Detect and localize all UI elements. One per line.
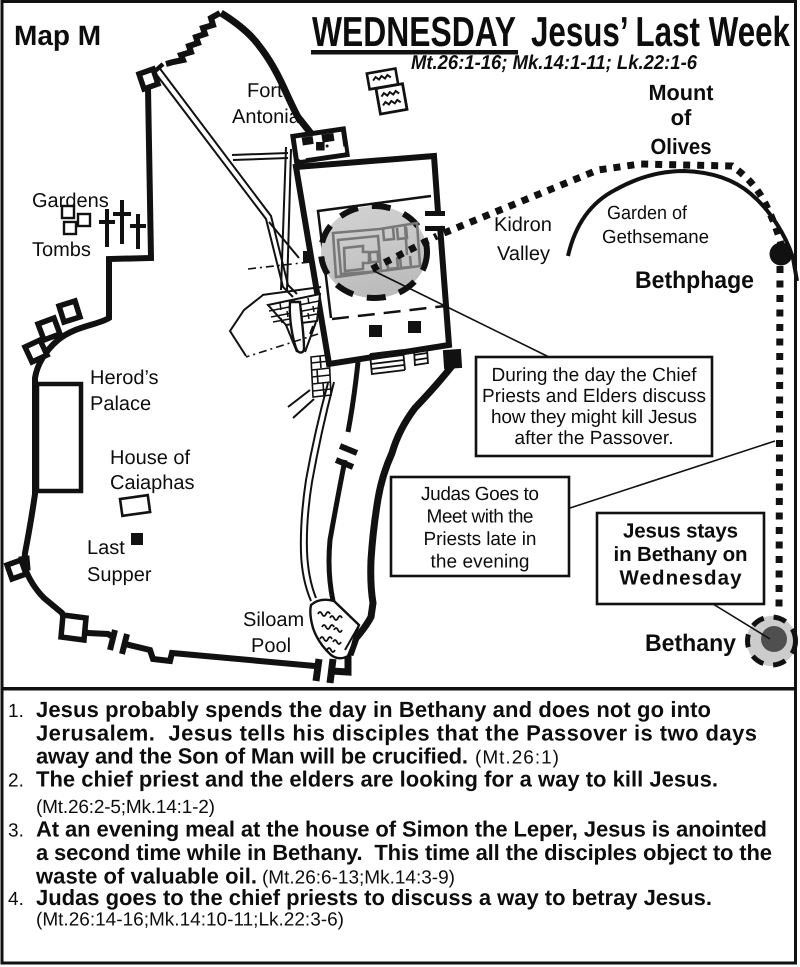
svg-text:Siloam: Siloam [243, 609, 304, 631]
svg-text:Mt.26:1-16; Mk.14:1-11; Lk.22:: Mt.26:1-16; Mk.14:1-11; Lk.22:1-6 [411, 52, 698, 74]
svg-text:Bethphage: Bethphage [635, 267, 754, 294]
svg-text:1.: 1. [8, 701, 24, 722]
svg-text:Valley: Valley [497, 243, 550, 265]
svg-text:Bethany: Bethany [645, 630, 737, 657]
svg-text:Antonia: Antonia [232, 106, 301, 128]
svg-text:WEDNESDAY: WEDNESDAY [312, 8, 516, 55]
svg-text:Map M: Map M [14, 20, 101, 51]
svg-text:Tombs: Tombs [32, 239, 91, 261]
svg-text:Last: Last [87, 537, 125, 559]
svg-text:4.: 4. [8, 889, 24, 910]
svg-text:House of: House of [110, 447, 190, 469]
svg-text:Wednesday: Wednesday [620, 567, 743, 590]
svg-text:(Mt.26:14-16;Mk.14:10-11;Lk.22: (Mt.26:14-16;Mk.14:10-11;Lk.22:3-6) [36, 910, 344, 931]
svg-text:2.: 2. [8, 771, 24, 792]
svg-text:During the day the Chief: During the day the Chief [492, 365, 698, 386]
svg-text:(Mt.26:1): (Mt.26:1) [475, 748, 559, 769]
svg-text:Herod’s: Herod’s [90, 367, 159, 389]
svg-text:Supper: Supper [87, 564, 152, 586]
svg-text:Judas goes to the chief priest: Judas goes to the chief priests to discu… [36, 885, 712, 910]
svg-text:Priests and Elders discuss: Priests and Elders discuss [482, 386, 706, 407]
svg-text:Olives: Olives [651, 134, 712, 159]
svg-text:Fort: Fort [247, 80, 283, 102]
svg-text:Priests late in: Priests late in [424, 529, 537, 550]
svg-text:Caiaphas: Caiaphas [110, 472, 195, 494]
svg-text:away and the Son of Man will b: away and the Son of Man will be crucifie… [36, 744, 468, 769]
svg-text:a second time while in Bethany: a second time while in Bethany. This tim… [36, 840, 772, 865]
svg-text:3.: 3. [8, 821, 24, 842]
svg-text:Jesus stays: Jesus stays [623, 520, 738, 543]
svg-text:Meet with the: Meet with the [427, 507, 534, 528]
svg-text:how they might kill Jesus: how they might kill Jesus [491, 407, 697, 428]
svg-text:Gethsemane: Gethsemane [602, 227, 709, 248]
svg-text:(Mt.26:2-5;Mk.14:1-2): (Mt.26:2-5;Mk.14:1-2) [36, 797, 215, 818]
svg-text:At an evening meal at the hous: At an evening meal at the house of Simon… [36, 817, 767, 842]
svg-text:Judas Goes to: Judas Goes to [421, 484, 539, 505]
svg-text:Jesus probably spends the day: Jesus probably spends the day in Bethany… [36, 697, 711, 722]
svg-text:Jerusalem. Jesus tells his di: Jerusalem. Jesus tells his disciples tha… [36, 721, 757, 746]
svg-text:the evening: the evening [431, 552, 530, 573]
svg-text:in Bethany on: in Bethany on [614, 543, 748, 566]
svg-text:The chief priest and the elder: The chief priest and the elders are look… [36, 767, 718, 792]
svg-text:Jesus’ Last Week: Jesus’ Last Week [531, 8, 790, 55]
svg-text:Garden of: Garden of [607, 203, 688, 224]
svg-text:Pool: Pool [251, 635, 291, 657]
svg-text:after the Passover.: after the Passover. [515, 428, 674, 449]
svg-text:of: of [671, 105, 692, 130]
svg-text:Mount: Mount [649, 80, 715, 105]
svg-text:Kidron: Kidron [494, 214, 552, 236]
svg-text:Palace: Palace [90, 393, 151, 415]
